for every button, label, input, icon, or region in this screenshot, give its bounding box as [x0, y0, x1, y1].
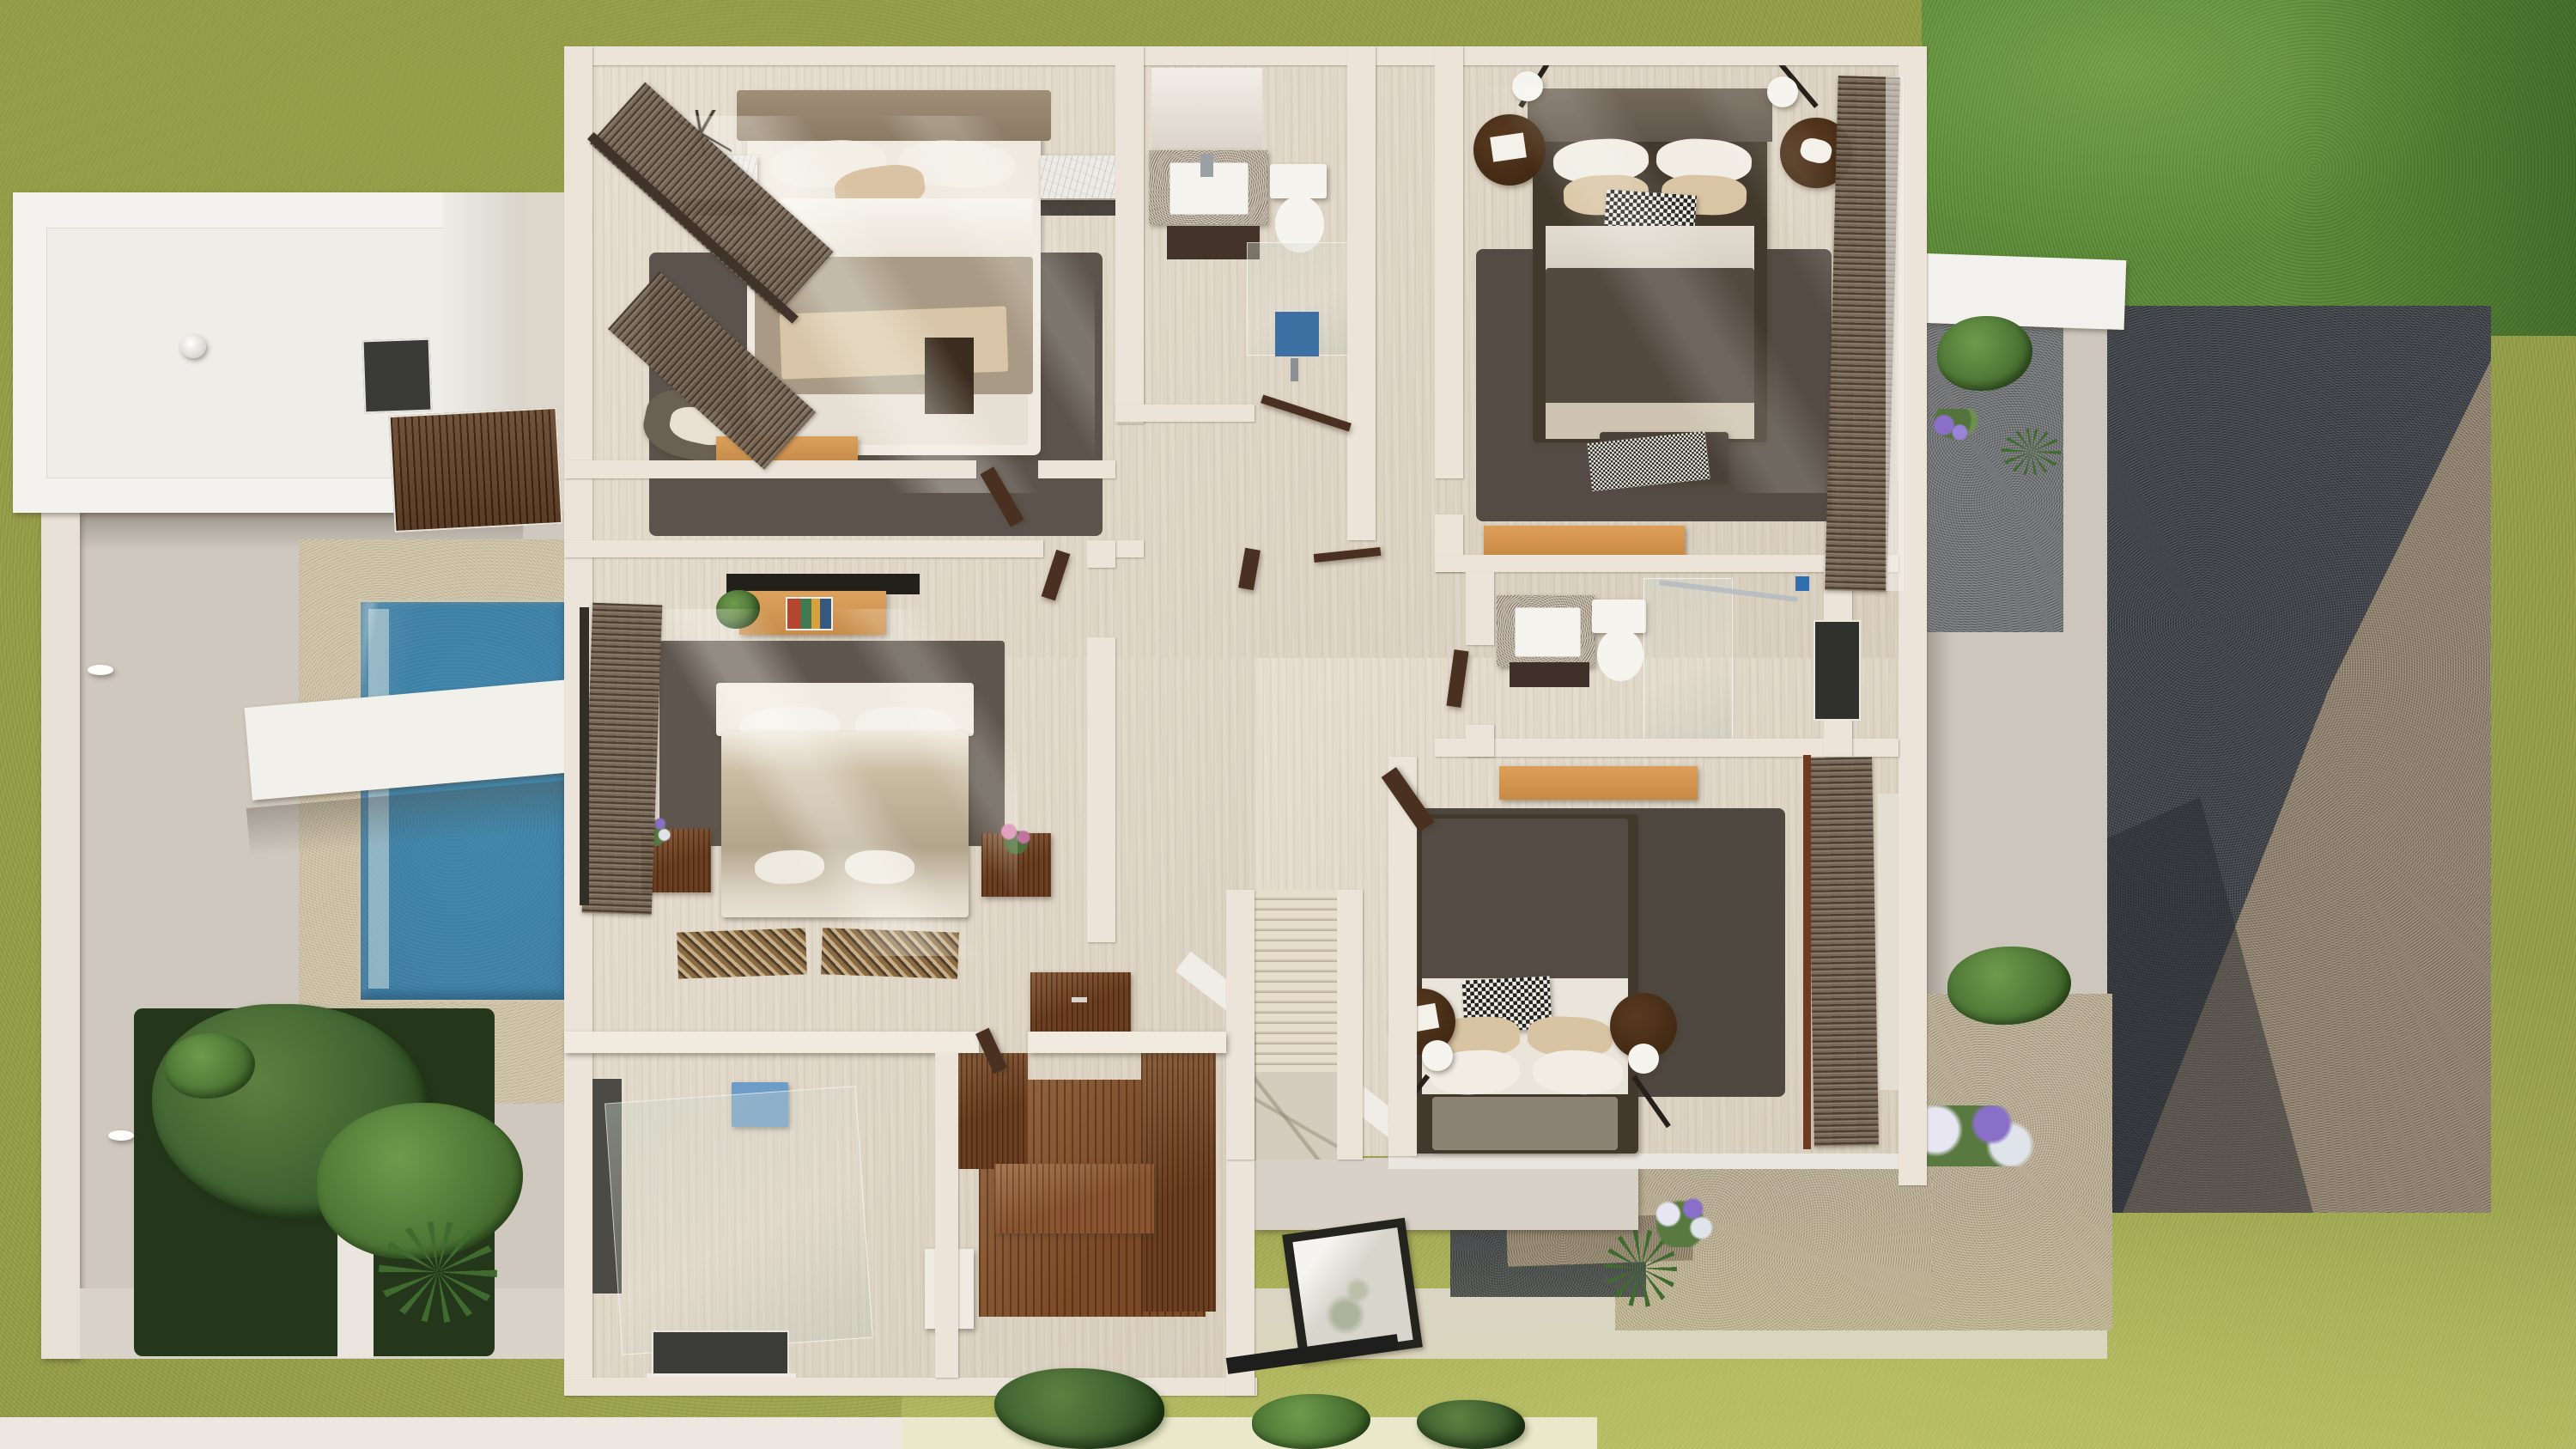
wood-slat-gate	[389, 407, 563, 533]
bd3-duvet	[1422, 819, 1628, 981]
wall-closet-north-b	[1028, 1032, 1226, 1053]
closet-island-bench	[994, 1164, 1154, 1233]
bd1-tv-unit	[925, 338, 974, 414]
wall-bath1-west	[1115, 46, 1144, 423]
wall-bd1-south-b	[1038, 460, 1115, 478]
palm-plant	[379, 1221, 497, 1323]
bd1-nightstand-shadow-right	[1041, 200, 1115, 216]
beige-bed-flowers-2	[1643, 1192, 1726, 1247]
bd3-curtain-band	[1807, 758, 1879, 1147]
master-mat-right	[821, 928, 959, 978]
bd2-headboard	[1528, 88, 1772, 142]
bd2-dresser	[1484, 526, 1685, 557]
perimeter-wall-left	[41, 510, 80, 1360]
bd2-lamp-globe-left	[1512, 71, 1543, 101]
gravel-flowers-purple	[1929, 409, 1978, 449]
master-bed-body	[721, 732, 969, 917]
wall-master-north-a	[564, 540, 1043, 557]
bath2-window	[1814, 620, 1861, 721]
wall-bd1-south-a	[564, 460, 976, 478]
mbath-shower-glass	[605, 1086, 873, 1355]
bd3-pillow-white-right	[1532, 1049, 1624, 1095]
bath2-shower-glass	[1643, 578, 1733, 742]
bath2-shampoo-bottle	[1795, 576, 1810, 591]
gravel-grass-tuft	[2002, 429, 2061, 475]
bath2-basin	[1515, 607, 1581, 657]
bd3-lamp-globe-right	[1628, 1044, 1659, 1074]
bd3-curtain-rod	[1803, 755, 1811, 1149]
bd1-throw-blanket	[780, 306, 1008, 379]
bd3-window-strip	[1878, 794, 1901, 1089]
bath1-cabinet-front	[1167, 226, 1260, 259]
master-window-frame	[580, 607, 589, 906]
master-dresser-picture	[786, 597, 833, 630]
wall-stairs-east	[1337, 890, 1363, 1160]
wall-bath2-west-a	[1466, 572, 1494, 644]
wall-closet-north-a	[564, 1032, 979, 1053]
hall-chest-handle	[1072, 997, 1087, 1002]
wall-bd2-west-a	[1435, 46, 1463, 478]
bd1-headboard	[737, 90, 1051, 141]
bath1-faucet	[1200, 154, 1213, 177]
master-curtain-band	[582, 603, 663, 916]
hall-walnut-chest	[1030, 972, 1131, 1032]
master-flowers-right	[992, 817, 1041, 853]
wall-sconce-lower	[108, 1130, 134, 1141]
bath1-shower-valve	[1291, 358, 1298, 381]
bd3-dresser	[1499, 766, 1698, 800]
wall-master-east-a	[1087, 540, 1115, 568]
bath1-mirror-counter	[1151, 68, 1262, 150]
bd2-lamp-globe-right	[1767, 76, 1798, 107]
bd1-nightstand-right	[1041, 155, 1115, 199]
master-mat-left	[677, 928, 807, 978]
bath2-cabinet-front	[1510, 662, 1589, 687]
bd2-duvet	[1546, 268, 1754, 405]
bath1-toilet-tank	[1270, 164, 1327, 198]
mbath-window-south	[652, 1330, 789, 1376]
porch-canopy-right	[1923, 253, 2127, 330]
wall-master-east-b	[1087, 637, 1115, 941]
wall-exterior-top	[564, 46, 1927, 65]
bd3-lamp-globe-left	[1422, 1040, 1453, 1070]
wall-bath1-east	[1347, 46, 1376, 540]
wall-stairs-west	[1226, 890, 1255, 1160]
wall-bath2-west-b	[1466, 725, 1494, 757]
entry-window-small	[362, 338, 433, 413]
floorplan-render-canvas	[0, 0, 2576, 1449]
roof-vent	[180, 335, 206, 358]
bd2-sheer-strip	[1886, 76, 1904, 591]
wall-bath1-south	[1115, 405, 1255, 422]
bath2-toilet-bowl	[1597, 629, 1643, 681]
bd3-foot-bench	[1432, 1097, 1618, 1150]
bd2-nightstand-card-left	[1490, 132, 1527, 161]
wall-bath-closet-divider	[935, 1053, 958, 1378]
roof-fascia-bedroom3	[1388, 1154, 1899, 1170]
bath1-shower-mat-blue	[1275, 312, 1319, 356]
